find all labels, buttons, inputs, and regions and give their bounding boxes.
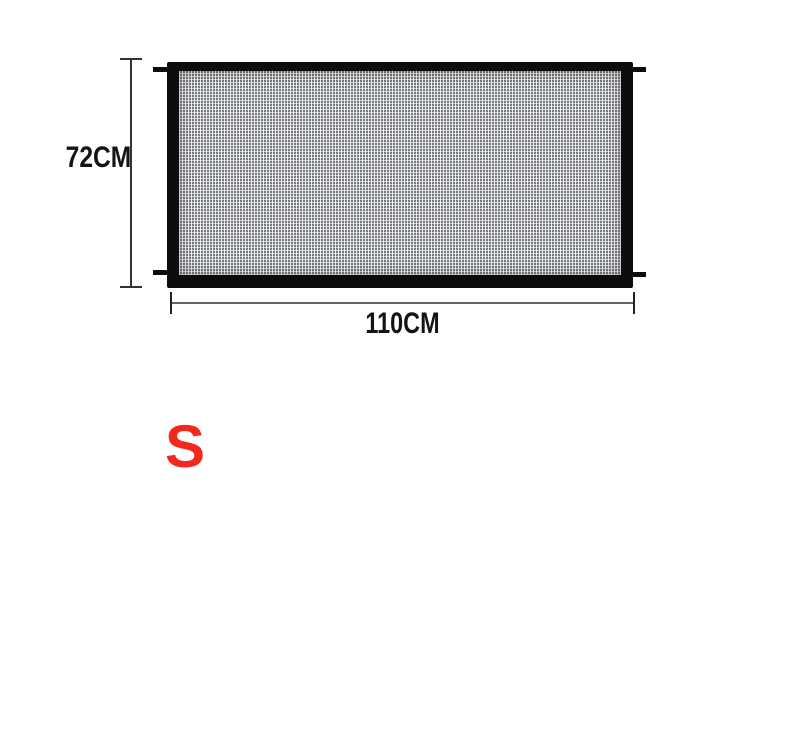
mesh-gate (167, 62, 633, 288)
gate-pin-top-left (153, 67, 168, 72)
width-dimension-label: 110CM (221, 309, 584, 339)
height-dimension-tick-bottom (120, 286, 142, 288)
gate-mesh-panel (179, 71, 621, 275)
width-dimension-tick-left (170, 292, 172, 314)
size-label: S (165, 417, 205, 477)
width-dimension-tick-right (633, 292, 635, 314)
height-dimension-tick-top (120, 58, 142, 60)
gate-pin-top-right (631, 67, 646, 72)
gate-pin-bottom-right (631, 272, 646, 277)
width-dimension-line (170, 302, 635, 304)
height-dimension-label: 72CM (66, 143, 128, 173)
gate-pin-bottom-left (153, 270, 168, 275)
product-dimension-diagram: 72CM 110CM S (0, 0, 787, 738)
